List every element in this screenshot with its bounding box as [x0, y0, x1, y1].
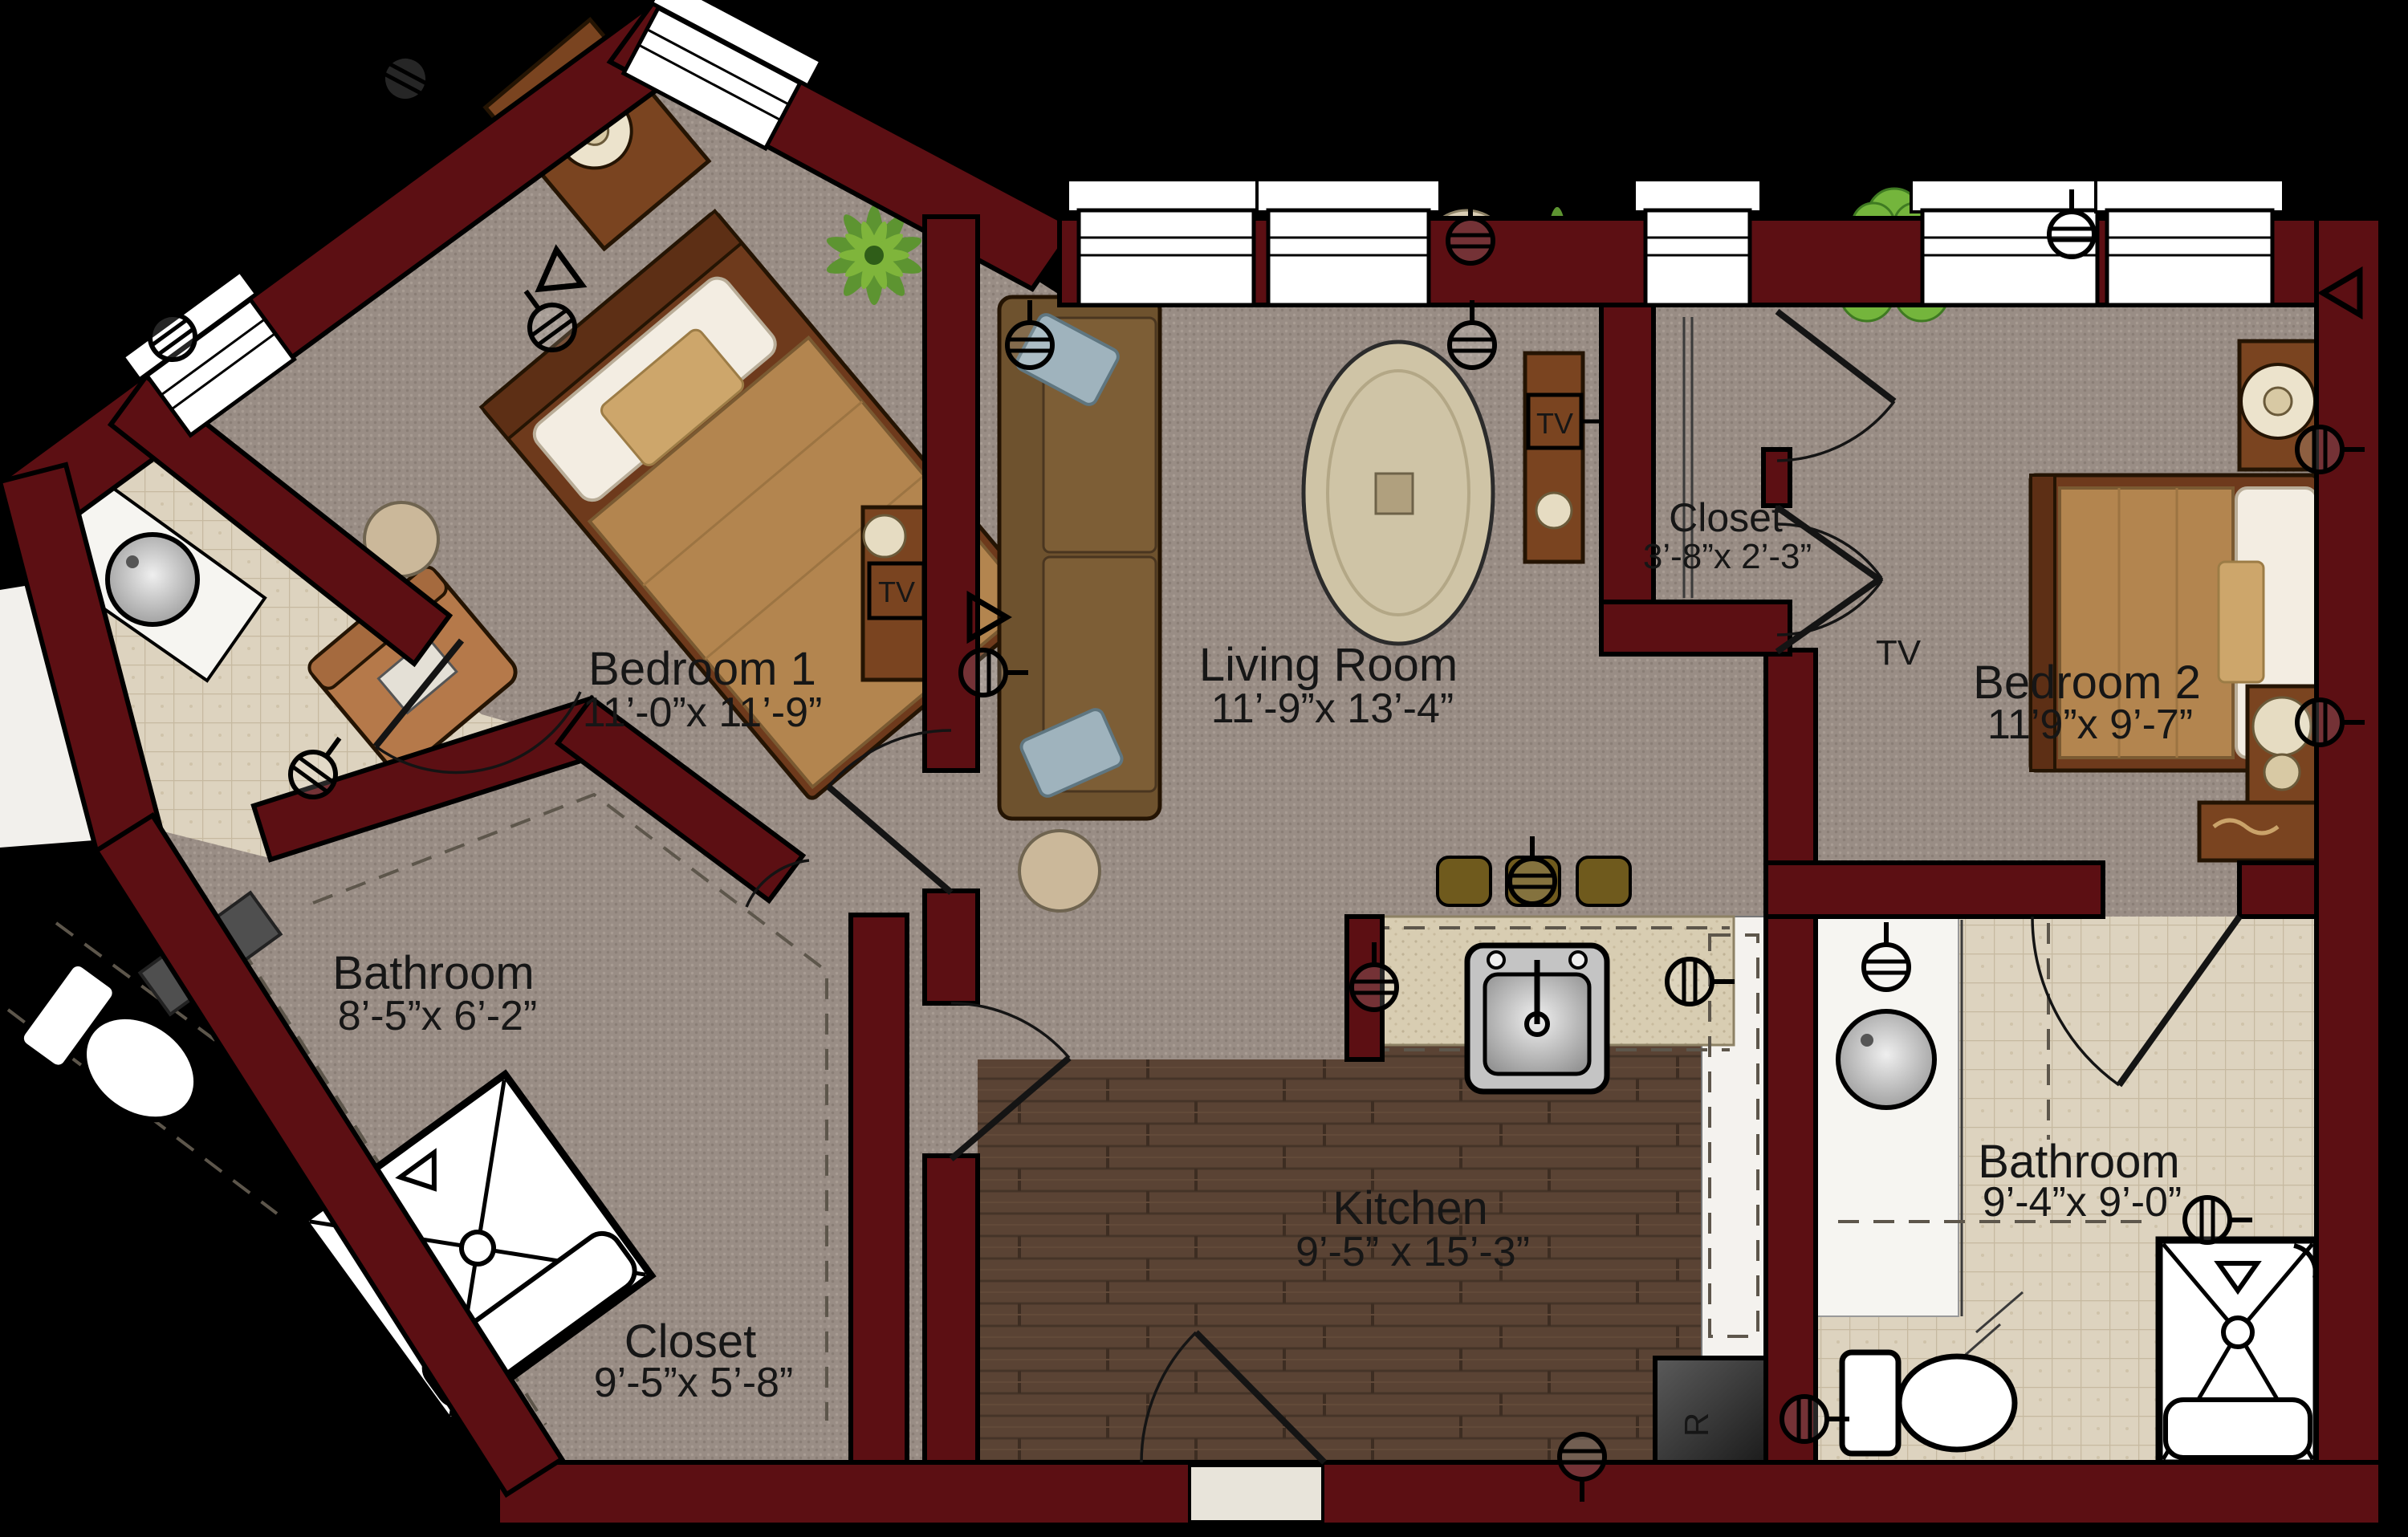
wall-bedroom2-bathroom2-west [1766, 863, 2103, 917]
label-bedroom1-dims: 11’-0”x 11’-9” [583, 689, 823, 736]
wall-closet2-east [851, 915, 907, 1462]
wall-kitchen-bathroom2 [1766, 650, 1816, 1462]
faucet-handle-icon [1570, 952, 1586, 968]
label-bathroom1-dims: 8’-5”x 6’-2” [338, 993, 538, 1039]
faucet-handle-icon [1488, 952, 1504, 968]
label-kitchen-name: Kitchen [1332, 1182, 1487, 1234]
label-tv-living: TV [1536, 407, 1573, 440]
label-bedroom2-dims: 11’9”x 9’-7” [1987, 701, 2193, 748]
wall-bottom [498, 1462, 2381, 1525]
window [1068, 180, 1265, 305]
label-living-dims: 11’-9”x 13’-4” [1211, 685, 1454, 732]
wall-bedroom2-bathroom2-east [2239, 863, 2316, 917]
wall-hall-stub [925, 891, 978, 1003]
shower-bathroom2 [2159, 1240, 2316, 1463]
label-kitchen-dims: 9’-5” x 15’-3” [1296, 1229, 1530, 1275]
window [1257, 180, 1440, 305]
toilet-bathroom2 [1842, 1352, 2015, 1454]
sink-bathroom2 [1838, 1011, 1934, 1108]
wall-kitchen-west [925, 1156, 978, 1462]
decor-bowl-icon [1536, 493, 1572, 528]
sink-drain-icon [126, 555, 139, 568]
label-closet1-name: Closet [1669, 495, 1783, 540]
label-closet1-dims: 3’-8”x 2’-3” [1643, 537, 1812, 576]
wall-closet1-south [1601, 602, 1790, 654]
label-refrigerator: R [1678, 1413, 1715, 1437]
label-living-name: Living Room [1199, 639, 1458, 691]
coffee-table [1304, 342, 1493, 644]
label-tv-bedroom1: TV [878, 575, 915, 608]
window [1634, 180, 1761, 305]
floorplan: Bedroom 1 11’-0”x 11’-9” Living Room 11’… [0, 0, 2408, 1537]
label-tv-bedroom2: TV [1876, 633, 1922, 673]
sink-drain-icon [1861, 1034, 1873, 1047]
wall-right [2316, 218, 2381, 1525]
sink-bathroom1 [108, 535, 197, 624]
kitchen-sink [1467, 945, 1607, 1092]
clock-icon [2241, 364, 2315, 438]
sofa-living-room [999, 297, 1160, 819]
desk-bedroom2 [2199, 803, 2316, 860]
label-closet2-dims: 9’-5”x 5’-8” [594, 1360, 794, 1406]
table-decor [1376, 474, 1413, 514]
label-bathroom2-dims: 9’-4”x 9’-0” [1983, 1179, 2182, 1226]
window [2096, 180, 2284, 305]
label-bedroom1-name: Bedroom 1 [588, 643, 816, 695]
label-bathroom1-name: Bathroom [332, 947, 534, 999]
side-table-living [1019, 831, 1100, 911]
decor-bowl-icon [864, 515, 905, 557]
